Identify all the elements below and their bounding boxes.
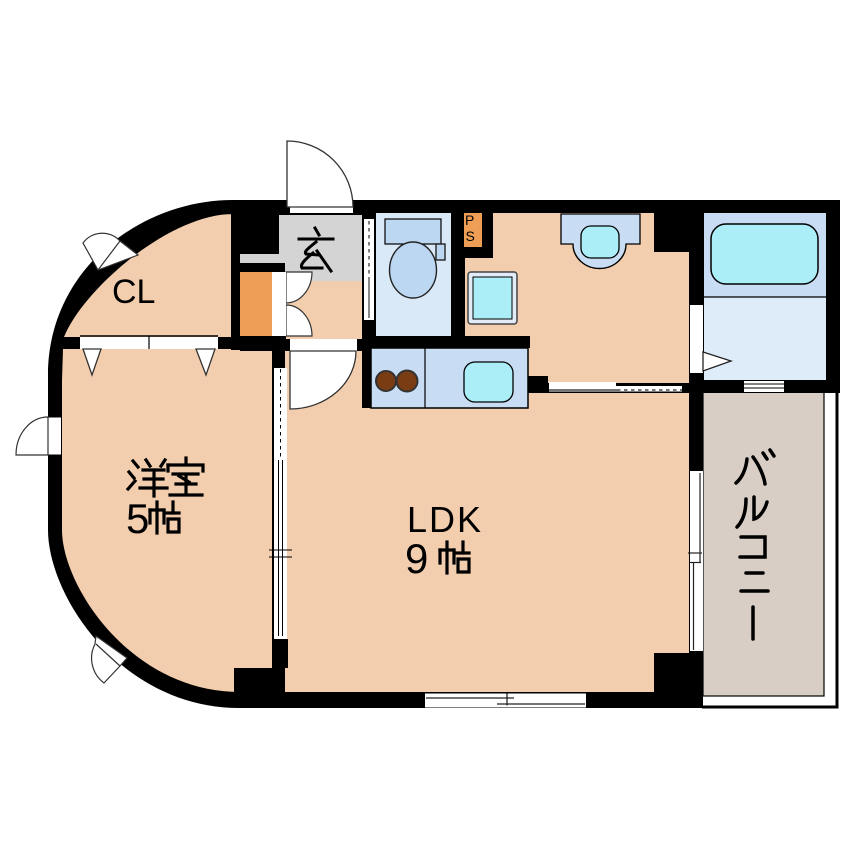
- svg-text:5: 5: [126, 495, 149, 542]
- svg-text:LDK: LDK: [407, 499, 483, 540]
- svg-text:S: S: [466, 228, 475, 244]
- svg-text:P: P: [465, 212, 474, 228]
- svg-text:9: 9: [405, 535, 428, 582]
- svg-text:CL: CL: [112, 273, 155, 311]
